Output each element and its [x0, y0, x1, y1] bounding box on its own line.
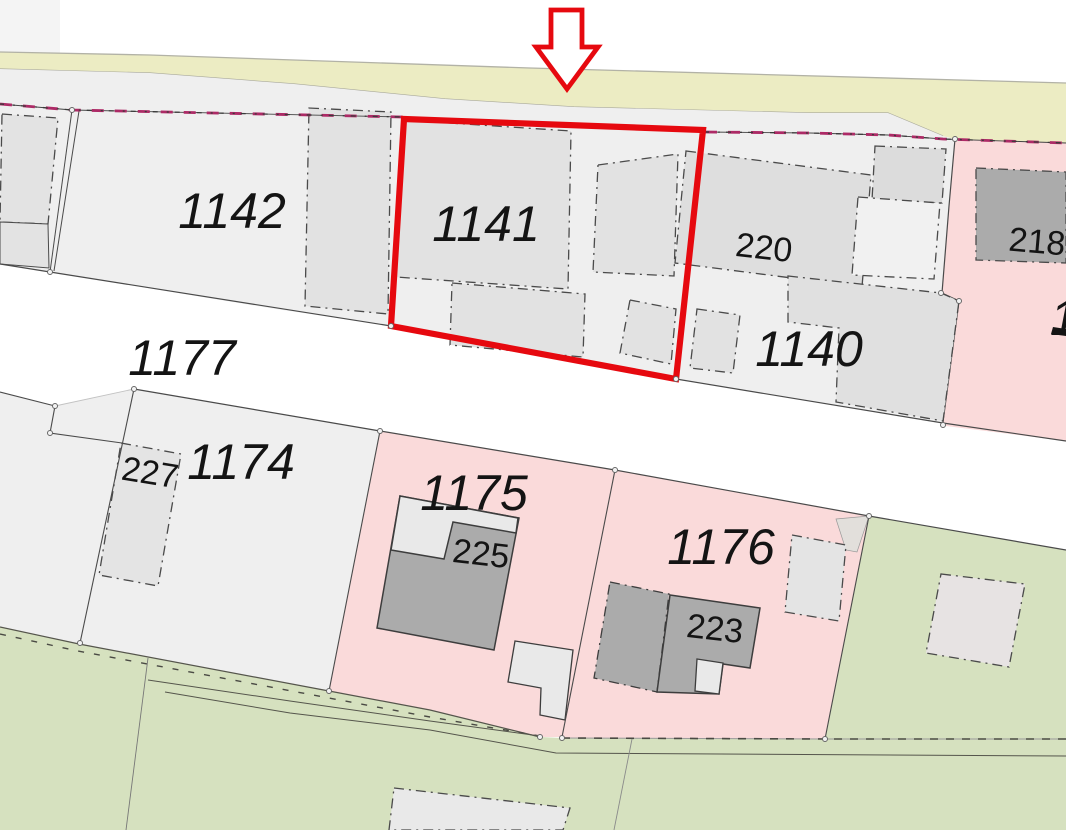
svg-text:220: 220 — [734, 226, 795, 270]
svg-text:218: 218 — [1007, 221, 1066, 264]
svg-text:1140: 1140 — [755, 321, 863, 377]
svg-text:1141: 1141 — [432, 196, 540, 252]
svg-text:1142: 1142 — [178, 183, 286, 239]
svg-text:1174: 1174 — [187, 434, 295, 490]
svg-text:1177: 1177 — [128, 330, 238, 386]
svg-text:1176: 1176 — [667, 519, 775, 575]
svg-text:223: 223 — [685, 607, 746, 651]
svg-text:1175: 1175 — [420, 465, 528, 521]
svg-text:225: 225 — [451, 532, 512, 576]
svg-text:1139: 1139 — [1050, 290, 1066, 346]
